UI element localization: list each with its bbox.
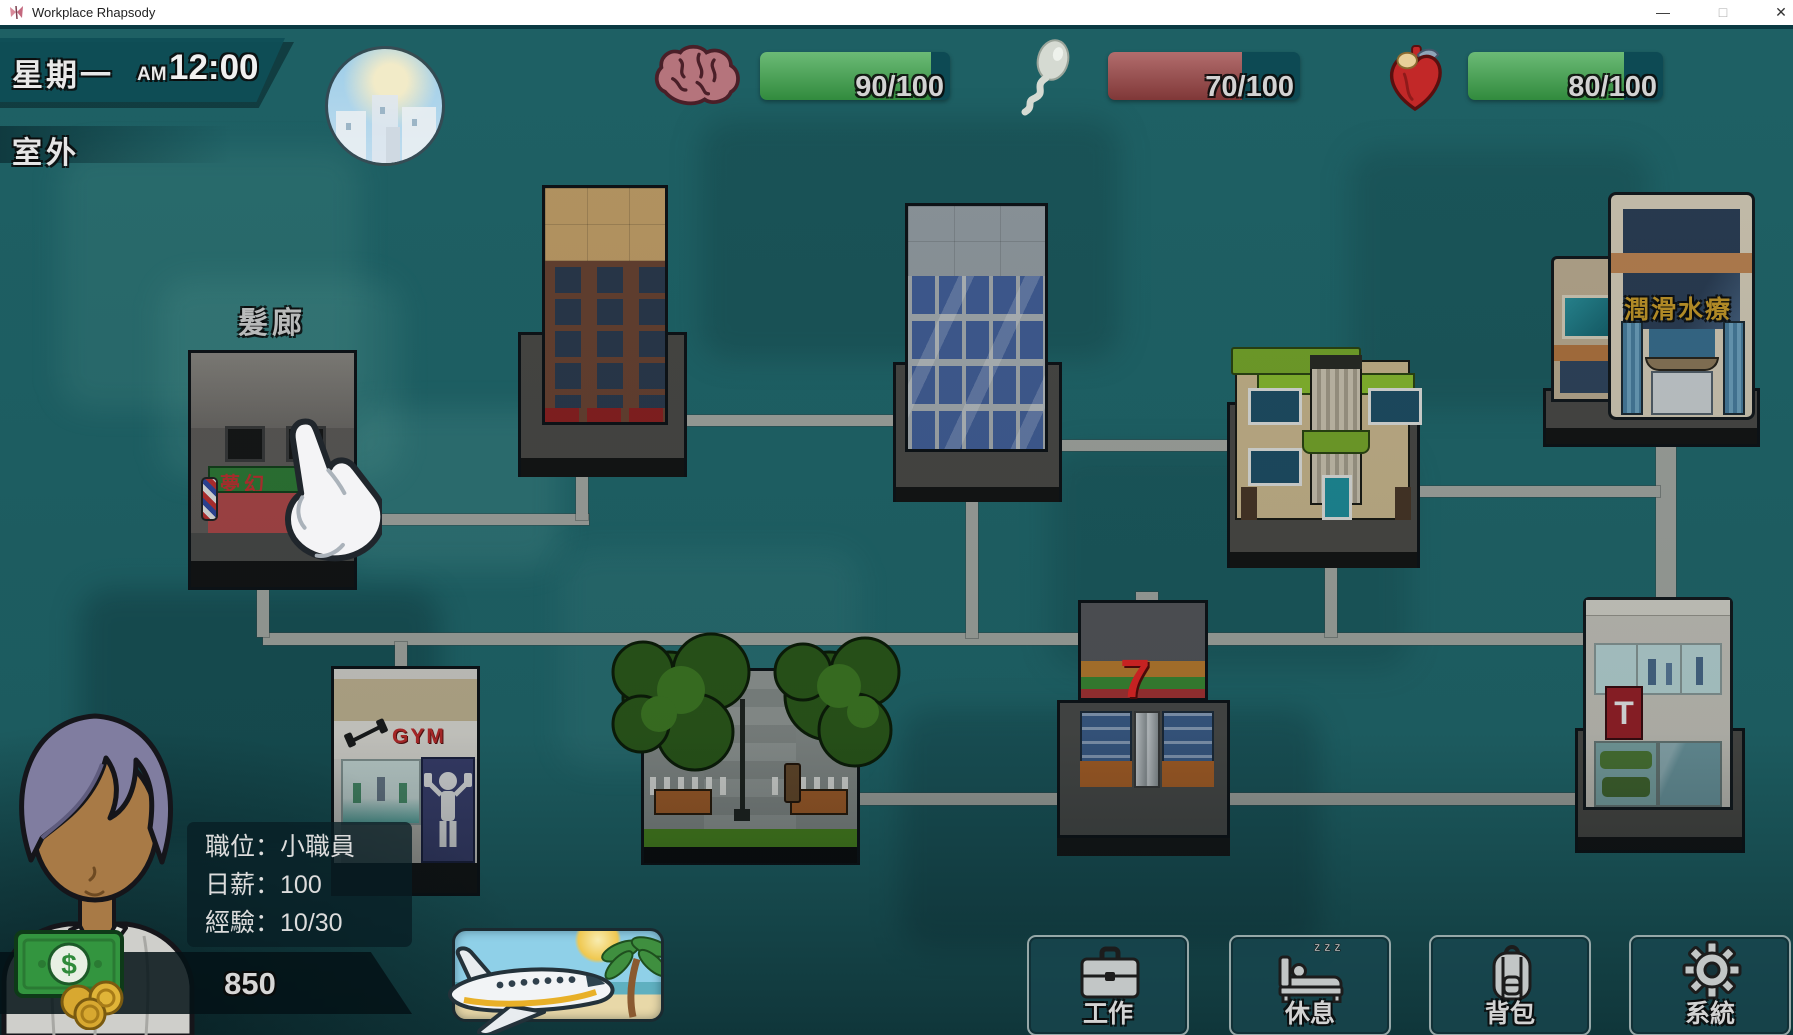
gear-icon bbox=[1681, 939, 1743, 1001]
weather-city-silhouette bbox=[336, 111, 366, 166]
money-amount: 850 bbox=[150, 966, 350, 1002]
road bbox=[1046, 440, 1238, 451]
road bbox=[966, 498, 978, 638]
action-label: 休息 bbox=[1231, 994, 1389, 1030]
barber-pole-icon bbox=[201, 477, 218, 521]
building-seven-store[interactable]: 7 bbox=[1057, 600, 1230, 856]
building-t-store[interactable]: T bbox=[1575, 597, 1745, 853]
title-bar: Workplace Rhapsody — □ ✕ bbox=[0, 0, 1793, 25]
road bbox=[1325, 562, 1337, 637]
road bbox=[357, 514, 589, 525]
plane-icon bbox=[438, 930, 638, 1034]
stat-label: 日薪： bbox=[205, 871, 280, 899]
salon-sign-text: 夢幻 bbox=[210, 474, 268, 493]
stat-value: 90/100 bbox=[855, 71, 944, 104]
stat-row-exp: 經驗：10/30 bbox=[205, 904, 412, 942]
action-button-work[interactable]: 工作 bbox=[1027, 935, 1189, 1035]
action-button-rest[interactable]: z z z 休息 bbox=[1229, 935, 1391, 1035]
day-banner: 星期一 AM 12:00 bbox=[0, 38, 285, 102]
money-symbol: $ bbox=[61, 949, 77, 980]
road bbox=[668, 415, 908, 426]
meridiem-label: AM bbox=[137, 64, 167, 86]
road bbox=[576, 470, 588, 520]
weather-indicator bbox=[325, 46, 445, 166]
tree-icon bbox=[607, 620, 907, 790]
stat-label: 經驗： bbox=[205, 909, 280, 937]
heart-icon bbox=[1383, 40, 1447, 116]
road bbox=[1228, 793, 1580, 805]
minimize-button[interactable]: — bbox=[1640, 0, 1686, 25]
stat-row-job: 職位：小職員 bbox=[205, 828, 412, 866]
close-button[interactable]: ✕ bbox=[1758, 0, 1793, 25]
action-label: 系統 bbox=[1631, 994, 1789, 1030]
cursor-hand-icon bbox=[264, 414, 382, 570]
location-band: 室外 bbox=[0, 126, 232, 163]
lifter-icon bbox=[423, 759, 473, 859]
building-label-salon: 髮廊 bbox=[238, 298, 306, 342]
road bbox=[1656, 445, 1676, 597]
app-icon bbox=[8, 4, 25, 21]
gym-sign-text: GYM bbox=[392, 725, 446, 749]
bench bbox=[654, 789, 712, 815]
stat-value: 80/100 bbox=[1568, 71, 1657, 104]
building-apartment[interactable] bbox=[518, 185, 688, 477]
day-label: 星期一 bbox=[12, 50, 114, 95]
money-icon: $ bbox=[14, 928, 134, 1035]
stat-row-salary: 日薪：100 bbox=[205, 866, 412, 904]
zzz-text: z z z bbox=[1314, 939, 1341, 954]
seven-sign-text: 7 bbox=[1120, 648, 1150, 710]
briefcase-icon bbox=[1078, 943, 1142, 1001]
building-label-spa: 潤滑水療 bbox=[1624, 290, 1732, 326]
stat-label: 職位： bbox=[205, 833, 280, 861]
window-title: Workplace Rhapsody bbox=[32, 0, 155, 25]
game-window: Workplace Rhapsody — □ ✕ 夢幻 bbox=[0, 0, 1793, 1035]
stat-bar-intellect: 90/100 bbox=[760, 52, 950, 100]
action-label: 背包 bbox=[1431, 994, 1589, 1030]
building-spa[interactable]: 潤滑水療 bbox=[1543, 192, 1760, 447]
time-label: 12:00 bbox=[169, 48, 259, 88]
building-green-house[interactable] bbox=[1227, 347, 1421, 568]
brain-icon bbox=[652, 44, 746, 106]
building-office[interactable] bbox=[893, 203, 1063, 502]
dumbbell-icon bbox=[344, 715, 390, 751]
maximize-button[interactable]: □ bbox=[1700, 0, 1746, 25]
stat-value: 小職員 bbox=[280, 833, 355, 861]
stat-bar-energy: 70/100 bbox=[1108, 52, 1300, 100]
action-button-system[interactable]: 系統 bbox=[1629, 935, 1791, 1035]
stat-bar-health: 80/100 bbox=[1468, 52, 1663, 100]
stat-value: 100 bbox=[280, 871, 322, 899]
building-park[interactable] bbox=[641, 620, 881, 862]
road bbox=[257, 585, 269, 637]
stat-value: 70/100 bbox=[1205, 71, 1294, 104]
player-stats-panel: 職位：小職員 日薪：100 經驗：10/30 bbox=[187, 822, 412, 947]
location-label: 室外 bbox=[12, 128, 80, 172]
sperm-icon bbox=[1003, 38, 1081, 116]
stat-value: 10/30 bbox=[280, 909, 343, 937]
action-button-backpack[interactable]: 背包 bbox=[1429, 935, 1591, 1035]
t-sign-text: T bbox=[1614, 695, 1634, 731]
road bbox=[1408, 486, 1660, 497]
t-store-sign: T bbox=[1605, 686, 1643, 740]
action-label: 工作 bbox=[1029, 994, 1187, 1030]
road bbox=[855, 793, 1065, 805]
